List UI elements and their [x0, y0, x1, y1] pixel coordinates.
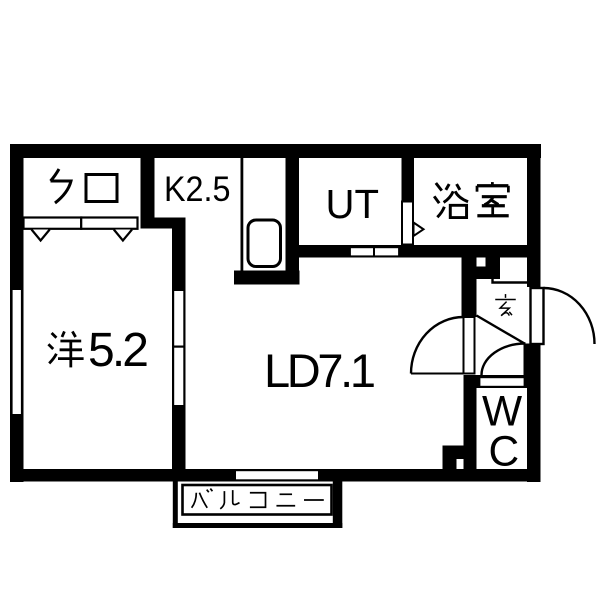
svg-text:LD7.1: LD7.1	[264, 344, 376, 397]
svg-text:UT: UT	[326, 181, 380, 227]
svg-text:K2.5: K2.5	[164, 170, 231, 209]
svg-text:5.2: 5.2	[88, 324, 149, 377]
svg-text:C: C	[489, 429, 520, 476]
